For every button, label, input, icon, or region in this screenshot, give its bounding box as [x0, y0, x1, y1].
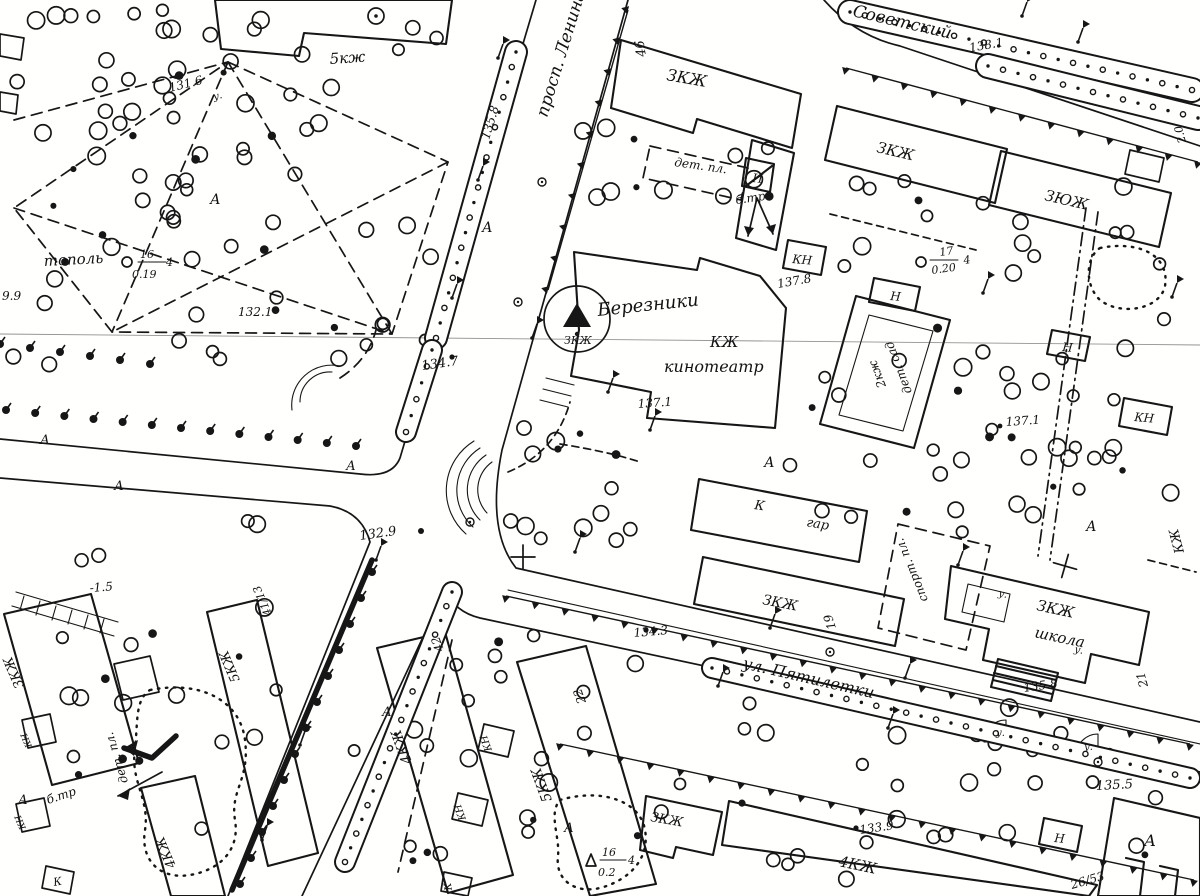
building-code: Н — [1053, 831, 1066, 846]
tree-dot-icon — [1050, 484, 1056, 490]
tree-circle-icon — [28, 12, 45, 29]
strip-dot-icon — [506, 80, 509, 83]
tree-circle-icon — [323, 80, 339, 96]
spot-elevation: 132.1 — [238, 305, 272, 319]
tree-circle-icon — [213, 352, 226, 365]
building-code: ЗКЖ — [1035, 596, 1077, 622]
tree-circle-icon — [838, 260, 850, 272]
tree-circle-icon — [47, 7, 64, 24]
house-number: 21 — [1133, 670, 1151, 689]
tree-circle-icon — [189, 307, 204, 322]
cinema-front-paths — [508, 402, 640, 472]
tree-dot-icon — [129, 132, 136, 139]
house-number: 46 — [632, 39, 650, 59]
circled-point-dot — [374, 14, 378, 18]
strip-dot-icon — [770, 680, 773, 683]
tree-circle-icon — [988, 763, 1001, 776]
lamp-pole — [575, 538, 580, 552]
tree-dot-icon — [765, 192, 774, 201]
tree-circle-icon — [1021, 450, 1036, 465]
tree-dot-icon — [260, 245, 269, 254]
tree-circle-icon — [399, 217, 415, 233]
tree-circle-icon — [247, 729, 263, 745]
strip-dot-icon — [417, 676, 420, 679]
strip-dot-icon — [860, 701, 863, 704]
tree-circle-icon — [113, 117, 127, 131]
spot-elevation: 137.8 — [776, 271, 813, 291]
tree-circle-icon — [609, 533, 623, 547]
tree-circle-icon — [839, 871, 854, 886]
strip-dot-icon — [1046, 79, 1049, 82]
lawn-dotted-outline — [1089, 246, 1166, 309]
spot-elevation: 137.1 — [1005, 413, 1040, 429]
tree-circle-icon — [124, 103, 141, 120]
tree-height: 16 — [602, 846, 616, 859]
spot-elevation-dot — [853, 825, 858, 830]
tree-circle-icon — [237, 150, 251, 164]
tree-circle-icon — [1015, 235, 1031, 251]
park-boundary-path — [14, 62, 448, 334]
cinema-code-label: КЖ — [709, 333, 740, 351]
strip-dot-icon — [830, 694, 833, 697]
playground-outline-top — [643, 146, 748, 200]
strip-dot-icon — [514, 50, 517, 53]
tree-circle-icon — [627, 656, 643, 672]
surface-mark-asphalt: А — [17, 793, 28, 808]
tree-circle-icon — [767, 853, 780, 866]
strip-dot-icon — [1196, 116, 1199, 119]
tree-circle-icon — [124, 638, 138, 652]
tree-circle-icon — [203, 28, 217, 42]
strip-dot-icon — [420, 381, 423, 384]
building-code: 4КЖ — [836, 852, 879, 878]
building-code: КН — [1133, 410, 1155, 426]
tree-dot-icon — [954, 387, 962, 395]
tree-circle-icon — [122, 73, 135, 86]
house-number: 22 — [570, 687, 589, 707]
strip-dot-icon — [383, 761, 386, 764]
manhole-dot — [829, 651, 831, 653]
tree-circle-icon — [1154, 258, 1166, 270]
playground-label: дет. пл. — [674, 155, 728, 176]
tree-circle-icon — [249, 516, 265, 532]
grid-cross — [1050, 551, 1080, 581]
strip-dot-icon — [410, 414, 413, 417]
strip-dot-icon — [447, 291, 450, 294]
lamp-pole — [498, 44, 503, 58]
tree-circle-icon — [1028, 250, 1040, 262]
tree-circle-icon — [598, 119, 615, 136]
tree-circle-icon — [976, 345, 990, 359]
tree-circle-icon — [92, 549, 106, 563]
tree-circle-icon — [331, 351, 347, 367]
building-code: ЗКЖ — [761, 592, 800, 615]
generated-symbols-layer — [0, 0, 1200, 888]
tree-circle-icon — [782, 858, 794, 870]
tree-circle-icon — [433, 847, 447, 861]
tree-diameter: 0.2 — [598, 866, 616, 879]
tree-circle-icon — [128, 8, 140, 20]
building-code: 5кж — [329, 48, 366, 68]
tree-circle-icon — [728, 149, 742, 163]
tree-diameter: 0.19 — [132, 268, 157, 281]
park-diagonal-path — [14, 62, 228, 120]
surface-mark-asphalt: А — [1143, 831, 1156, 850]
building-annex-left — [114, 656, 159, 700]
spot-elevation-partial: 9.9 — [2, 289, 21, 303]
tree-dot-icon — [985, 432, 994, 441]
tree-circle-icon — [1158, 313, 1171, 326]
tree-dot-icon — [612, 450, 621, 459]
tree-circle-icon — [73, 690, 89, 706]
surface-mark: у. — [211, 90, 223, 103]
tree-circle-icon — [1013, 214, 1028, 229]
tree-dot-icon — [530, 817, 536, 823]
building-3kzh-19 — [694, 557, 904, 646]
tree-circle-icon — [504, 514, 518, 528]
lamp-pole — [905, 664, 910, 678]
tree-circle-icon — [655, 181, 672, 198]
tree-circle-icon — [783, 459, 796, 472]
tree-circle-icon — [854, 238, 871, 255]
road-inner-line — [508, 590, 1200, 744]
strip-dot-icon — [1086, 65, 1089, 68]
tree-spacing: 4 — [627, 854, 635, 867]
tree-circle-icon — [860, 836, 873, 849]
tree-circle-icon — [404, 840, 416, 852]
strip-dot-icon — [439, 619, 442, 622]
tree-circle-icon — [857, 759, 869, 771]
tree-dot-icon — [633, 184, 639, 190]
tree-circle-icon — [237, 95, 254, 112]
lamp-flag-icon — [537, 316, 544, 324]
lamp-flag-icon — [267, 818, 274, 826]
tree-circle-icon — [237, 143, 249, 155]
tree-circle-icon — [495, 671, 507, 683]
corner-fan-arcs — [446, 441, 492, 534]
tree-circle-icon — [1105, 440, 1121, 456]
tree-circle-icon — [956, 526, 968, 538]
tree-circle-icon — [169, 687, 185, 703]
lamp-flag-icon — [1083, 20, 1090, 28]
tree-diameter: 0.20 — [931, 261, 957, 277]
surface-mark-asphalt: А — [345, 459, 356, 474]
symbols-layer — [12, 8, 1098, 866]
tree-circle-icon — [157, 4, 169, 16]
surface-mark-asphalt: А — [209, 192, 221, 208]
tree-circle-icon — [284, 88, 297, 101]
tree-circle-icon — [87, 10, 99, 22]
lamp-flag-icon — [1177, 275, 1184, 283]
strip-dot-icon — [949, 721, 952, 724]
building-code: ЗКЖ — [875, 138, 917, 164]
manhole-dot — [541, 181, 543, 183]
tree-circle-icon — [522, 826, 534, 838]
tree-circle-icon — [933, 467, 947, 481]
tree-dot-icon — [903, 508, 911, 516]
building-code: КН — [14, 813, 29, 832]
tree-circle-icon — [850, 176, 864, 190]
block-boundaries — [830, 214, 1196, 572]
building-4kzh-center — [377, 632, 513, 893]
spot-elevation: 134.3 — [633, 623, 669, 640]
tree-circle-icon — [1129, 838, 1144, 853]
tree-circle-icon — [954, 452, 969, 467]
tree-dot-icon — [221, 70, 227, 76]
strip-dot-icon — [1076, 87, 1079, 90]
garage-label: гар — [805, 515, 831, 534]
tree-dot-icon — [331, 324, 338, 331]
strip-dot-icon — [919, 714, 922, 717]
tree-circle-icon — [406, 21, 420, 35]
strip-dot-icon — [1027, 51, 1030, 54]
tree-circle-icon — [517, 421, 531, 435]
park-diagonal-path — [112, 162, 448, 332]
sports-ground-label: спорт. пл. — [892, 536, 930, 604]
edge-sheds — [0, 34, 24, 114]
lamp-pole — [376, 546, 381, 560]
surface-mark: у. — [996, 588, 1008, 601]
tree-circle-icon — [207, 346, 219, 358]
road-edge-south-west — [0, 478, 370, 896]
tree-circle-icon — [578, 726, 591, 739]
building-code: ЗКЖ — [1, 654, 28, 690]
strip-dot-icon — [455, 261, 458, 264]
embankment-height: -1.5 — [89, 579, 113, 595]
arrowheads — [744, 224, 776, 236]
spot-elevation-dot — [418, 528, 424, 534]
tree-circle-icon — [517, 518, 534, 535]
lamp-pole — [1022, 2, 1027, 16]
strip-dot-icon — [464, 231, 467, 234]
surface-mark-asphalt: А — [481, 220, 493, 236]
tree-circle-icon — [954, 359, 971, 376]
house-number: 26/53 — [1068, 869, 1106, 892]
strip-dot-icon — [1116, 71, 1119, 74]
tree-circle-icon — [460, 750, 477, 767]
tree-circle-icon — [136, 193, 150, 207]
tree-circle-icon — [60, 687, 77, 704]
tree-dot-icon — [424, 849, 431, 856]
surface-mark-asphalt: А — [39, 433, 50, 448]
transformer-label: б.тр — [734, 189, 766, 207]
tree-circle-icon — [103, 239, 120, 256]
tree-circle-icon — [57, 632, 69, 644]
strip-dot-icon — [848, 10, 851, 13]
spot-elevation: 135.5 — [1095, 777, 1133, 794]
tree-dot-icon — [236, 653, 243, 660]
tree-dot-icon — [1141, 851, 1148, 858]
lamp-flag-icon — [1027, 0, 1034, 2]
tree-dot-icon — [268, 132, 276, 140]
lamp-flag-icon — [613, 370, 620, 378]
strip-dot-icon — [430, 348, 433, 351]
tree-circle-icon — [90, 122, 107, 139]
tree-circle-icon — [47, 271, 63, 287]
tree-dot-icon — [70, 166, 76, 172]
tree-dot-icon — [191, 155, 200, 164]
strip-dot-icon — [1146, 78, 1149, 81]
building-code: К — [752, 498, 766, 515]
tree-circle-icon — [819, 372, 830, 383]
tree-dot-icon — [738, 800, 745, 807]
tree-dot-icon — [409, 857, 416, 864]
strip-dot-icon — [371, 789, 374, 792]
strip-dot-icon — [1158, 769, 1161, 772]
tree-circle-icon — [1061, 450, 1077, 466]
tree-circle-icon — [98, 104, 112, 118]
tree-circle-icon — [167, 112, 179, 124]
tree-circle-icon — [6, 349, 21, 364]
tree-circle-icon — [393, 44, 404, 55]
conifer-symbol — [586, 854, 596, 866]
tree-circle-icon — [1121, 226, 1134, 239]
surface-mark-asphalt: А — [1085, 519, 1097, 535]
tree-dot-icon — [1119, 467, 1125, 473]
cinema-entrance-steps — [540, 378, 574, 407]
tree-circle-icon — [738, 723, 750, 735]
park-paths-layer — [14, 62, 448, 410]
tree-circle-icon — [845, 510, 858, 523]
strip-dot-icon — [472, 201, 475, 204]
strip-dot-icon — [349, 846, 352, 849]
tree-circle-icon — [1028, 776, 1042, 790]
tree-circle-icon — [1108, 394, 1120, 406]
lamp-pole — [1172, 283, 1177, 297]
manhole-dot — [469, 521, 471, 523]
tree-dot-icon — [631, 136, 638, 143]
tree-circle-icon — [93, 77, 107, 91]
street-label-prosp-lenina: просп. Ленина — [533, 0, 590, 119]
building-code: ЗКЖ — [665, 65, 709, 91]
surface-mark: у. — [995, 728, 1005, 739]
tree-circle-icon — [605, 482, 618, 495]
tree-symbol — [122, 257, 132, 267]
lamp-flag-icon — [963, 543, 970, 551]
surface-mark-asphalt: А — [563, 821, 574, 836]
tree-circle-icon — [863, 182, 875, 194]
tree-dot-icon — [494, 637, 503, 646]
tree-circle-icon — [266, 215, 280, 229]
strip-dot-icon — [1166, 109, 1169, 112]
strip-dot-icon — [1009, 735, 1012, 738]
tree-symbol — [916, 257, 926, 267]
strip-dot-icon — [979, 728, 982, 731]
spot-elevation: 137.1 — [637, 395, 672, 411]
tree-circle-icon — [891, 780, 903, 792]
park-diagonal-path — [228, 62, 392, 334]
tree-circle-icon — [488, 649, 501, 662]
tree-circle-icon — [528, 630, 540, 642]
tree-circle-icon — [359, 222, 374, 237]
strip-dot-icon — [1188, 776, 1191, 779]
tree-circle-icon — [181, 184, 193, 196]
building-code: КН — [791, 252, 813, 268]
scanned-city-map-page: просп. ЛенинаСоветскийул. ПятилеткиБерез… — [0, 0, 1200, 896]
strip-dot-icon — [986, 64, 989, 67]
lamp-pole — [958, 551, 963, 565]
small-arrowhead — [118, 788, 130, 800]
tree-circle-icon — [535, 532, 547, 544]
building-garage — [691, 479, 867, 562]
surface-mark-asphalt: А — [113, 479, 124, 494]
tree-circle-icon — [1117, 340, 1133, 356]
tree-circle-icon — [815, 504, 829, 518]
tree-circle-icon — [195, 822, 208, 835]
building-code: 2кж — [865, 358, 889, 391]
tree-circle-icon — [758, 725, 774, 741]
tree-circle-icon — [832, 388, 846, 402]
strip-dot-icon — [405, 704, 408, 707]
lamp-pole — [1078, 28, 1083, 42]
tree-dot-icon — [99, 231, 107, 239]
spot-elevation: 133.9 — [858, 818, 894, 837]
booth-mark: И — [751, 171, 764, 186]
tree-circle-icon — [294, 47, 309, 62]
tree-dot-icon — [272, 306, 280, 314]
tree-circle-icon — [75, 554, 88, 567]
tree-spacing: 4 — [962, 253, 972, 267]
tree-circle-icon — [976, 197, 989, 210]
strip-dot-icon — [800, 687, 803, 690]
tree-circle-icon — [1033, 374, 1049, 390]
cinema-name-label: Березники — [595, 289, 699, 321]
tree-circle-icon — [1073, 483, 1084, 494]
strip-dot-icon — [710, 666, 713, 669]
tree-dot-icon — [75, 771, 82, 778]
geodetic-triangle-icon — [563, 303, 591, 327]
hedge-tooth-icon — [1186, 743, 1194, 751]
strip-dot-icon — [1129, 763, 1132, 766]
surface-mark: у. — [1083, 742, 1093, 753]
strip-dot-icon — [1056, 58, 1059, 61]
manhole-dot — [517, 301, 519, 303]
tree-dot-icon — [915, 196, 923, 204]
tree-circle-icon — [42, 357, 57, 372]
tree-circle-icon — [948, 502, 963, 517]
tree-circle-icon — [35, 125, 51, 141]
surface-mark-asphalt: А — [763, 455, 775, 471]
transformer-label: б.тр — [45, 784, 78, 807]
tree-circle-icon — [602, 183, 619, 200]
building-5kzh-top-left — [215, 0, 452, 56]
building-kindergarten-inner — [839, 315, 933, 431]
tree-dot-icon — [50, 203, 56, 209]
building-code: КЖ — [1167, 527, 1188, 556]
building-code: ЗЮЖ — [1043, 186, 1091, 214]
tree-circle-icon — [864, 454, 877, 467]
fraction-bars — [138, 260, 958, 860]
quarter-boundary — [1038, 208, 1098, 560]
tree-circle-icon — [133, 169, 147, 183]
tree-circle-icon — [10, 75, 24, 89]
tree-circle-icon — [64, 9, 78, 23]
tree-height: 17 — [939, 244, 955, 259]
tree-circle-icon — [1025, 507, 1041, 523]
tree-circle-icon — [888, 727, 905, 744]
tree-circle-icon — [593, 506, 608, 521]
tree-circle-icon — [1162, 485, 1178, 501]
kindergarten-label: дет. сад — [882, 339, 915, 396]
tree-circle-icon — [1149, 791, 1163, 805]
labels-layer: просп. ЛенинаСоветскийул. ПятилеткиБерез… — [1, 0, 1189, 892]
tree-circle-icon — [348, 745, 359, 756]
tree-circle-icon — [423, 249, 438, 264]
tree-dot-icon — [809, 404, 816, 411]
tree-circle-icon — [225, 240, 238, 253]
tree-circle-icon — [921, 210, 932, 221]
tree-dot-icon — [1008, 433, 1016, 441]
